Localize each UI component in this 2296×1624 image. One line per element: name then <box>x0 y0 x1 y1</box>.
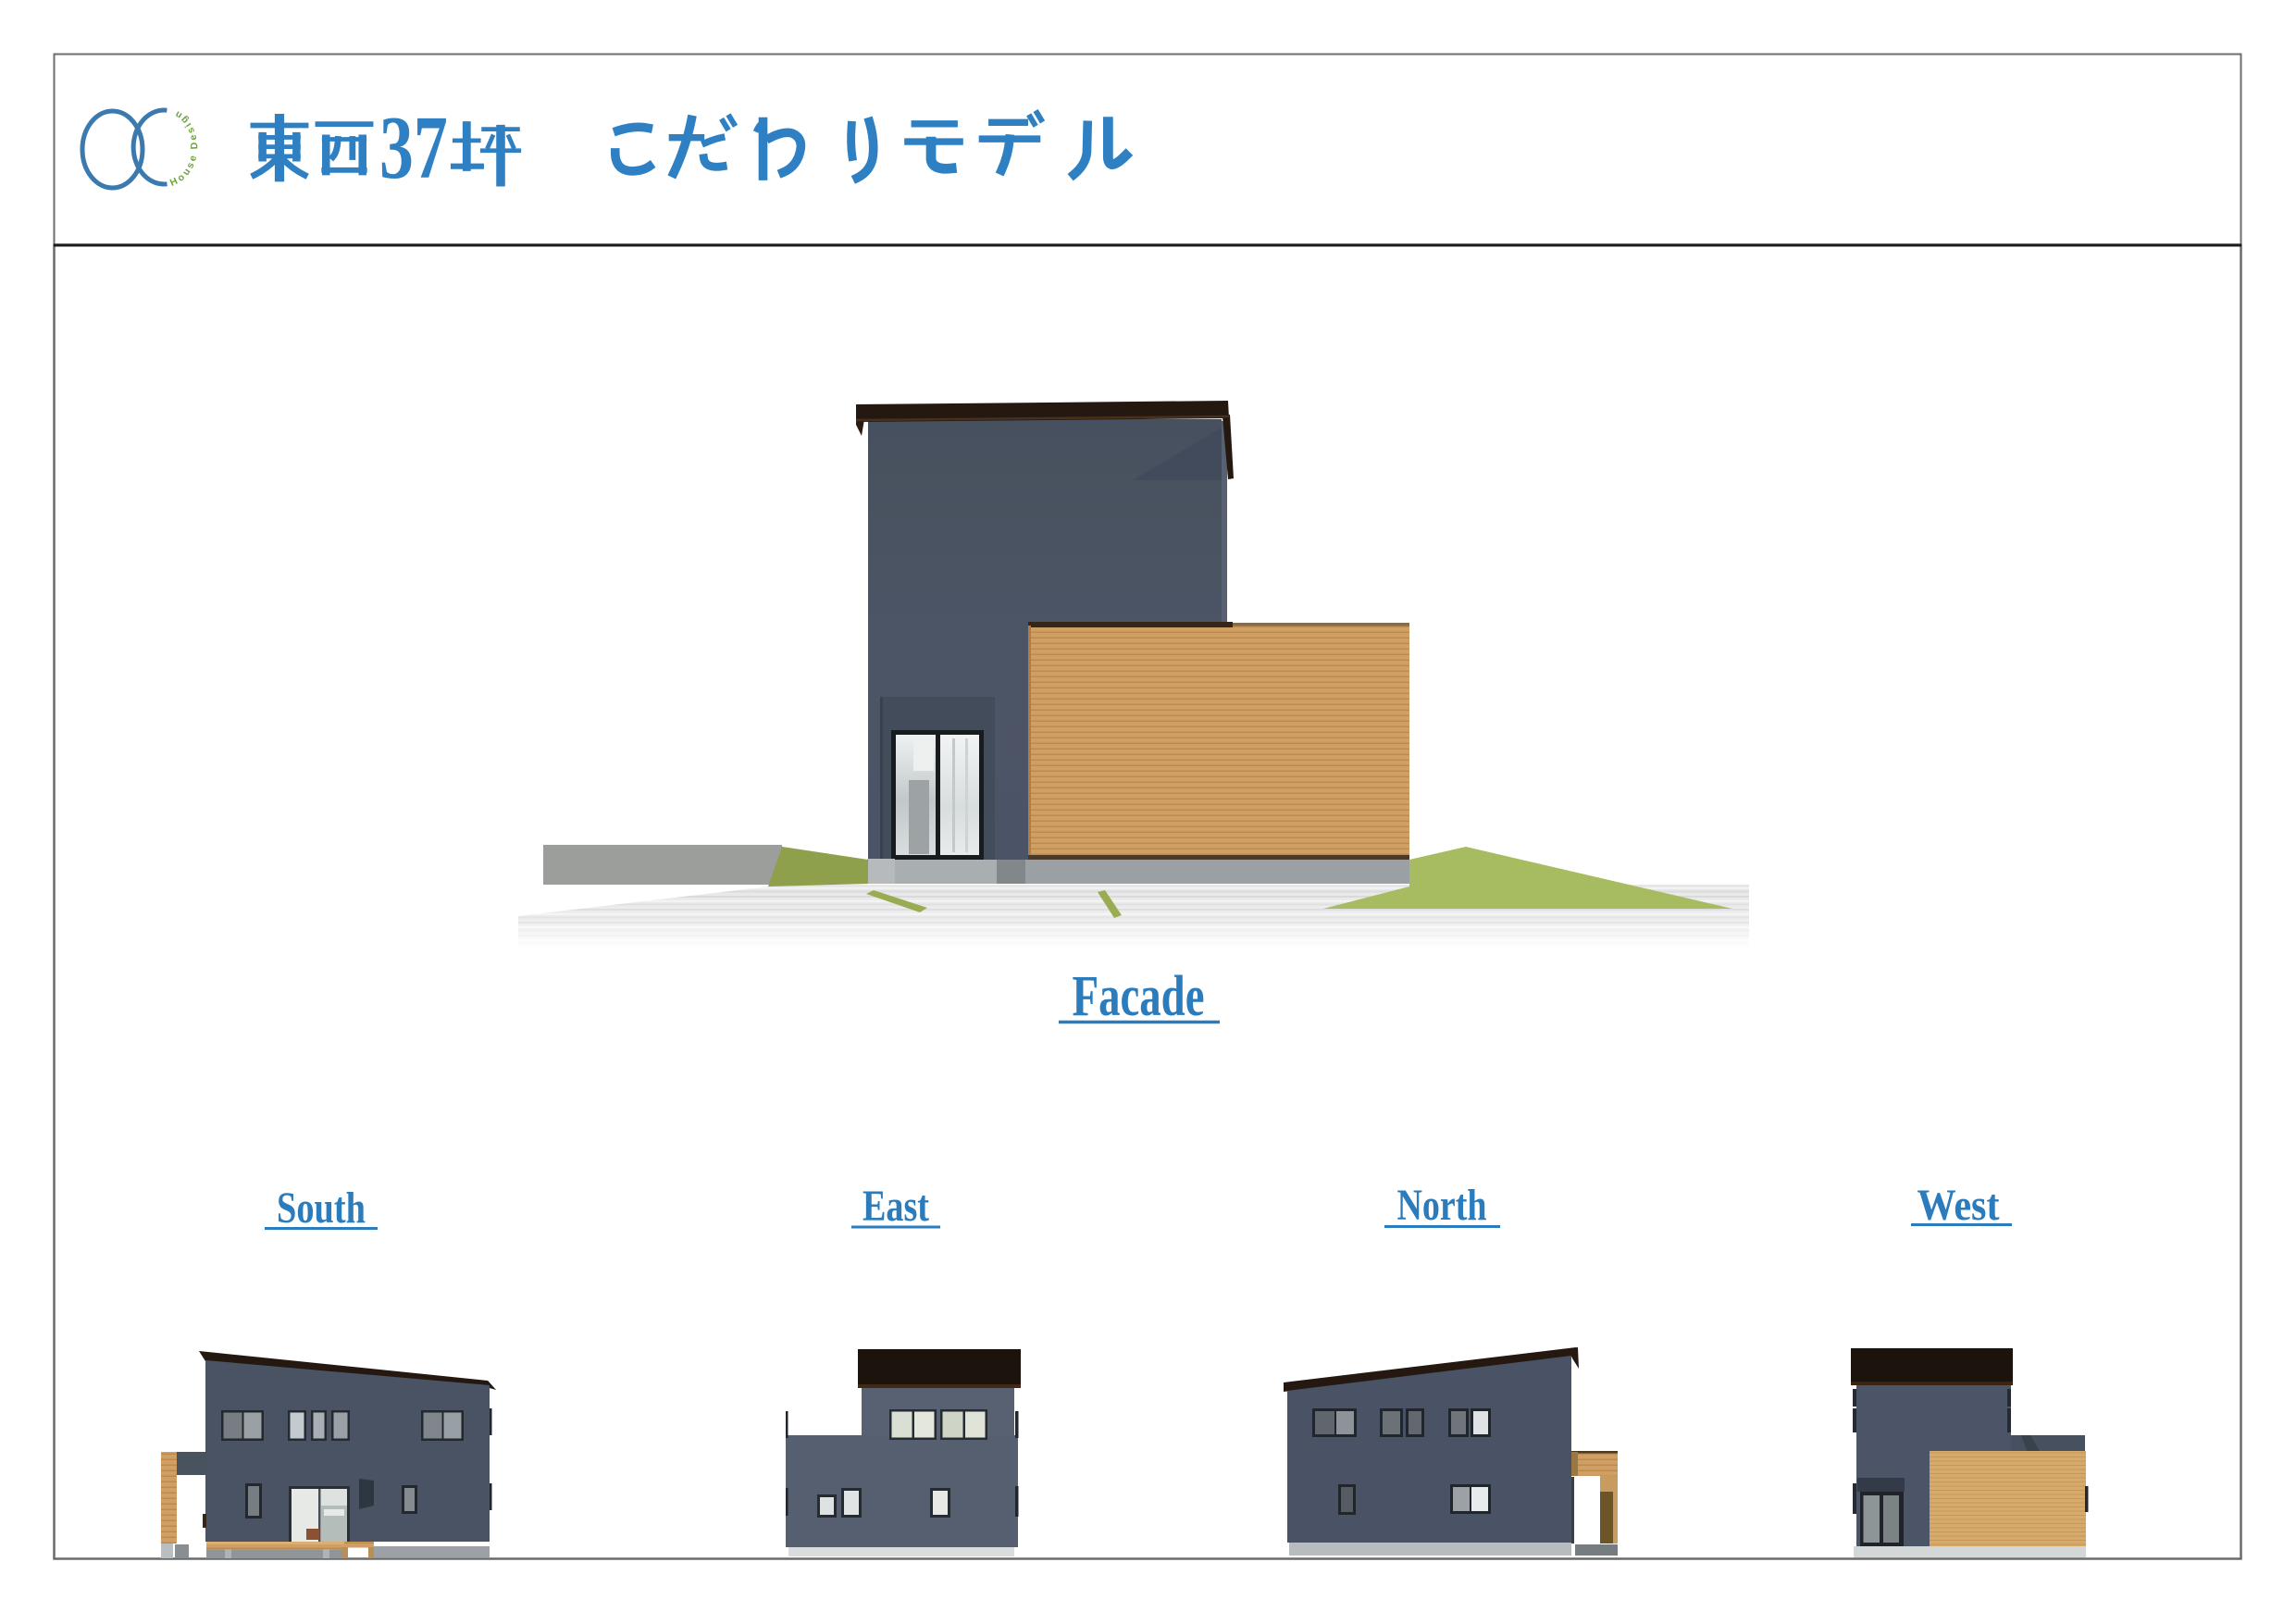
svg-text:North: North <box>1397 1181 1487 1230</box>
svg-text:Facade: Facade <box>1073 965 1205 1028</box>
svg-text:37: 37 <box>379 97 448 197</box>
svg-text:West: West <box>1917 1181 2000 1230</box>
svg-text:South: South <box>277 1184 366 1233</box>
svg-text:East: East <box>863 1182 929 1231</box>
